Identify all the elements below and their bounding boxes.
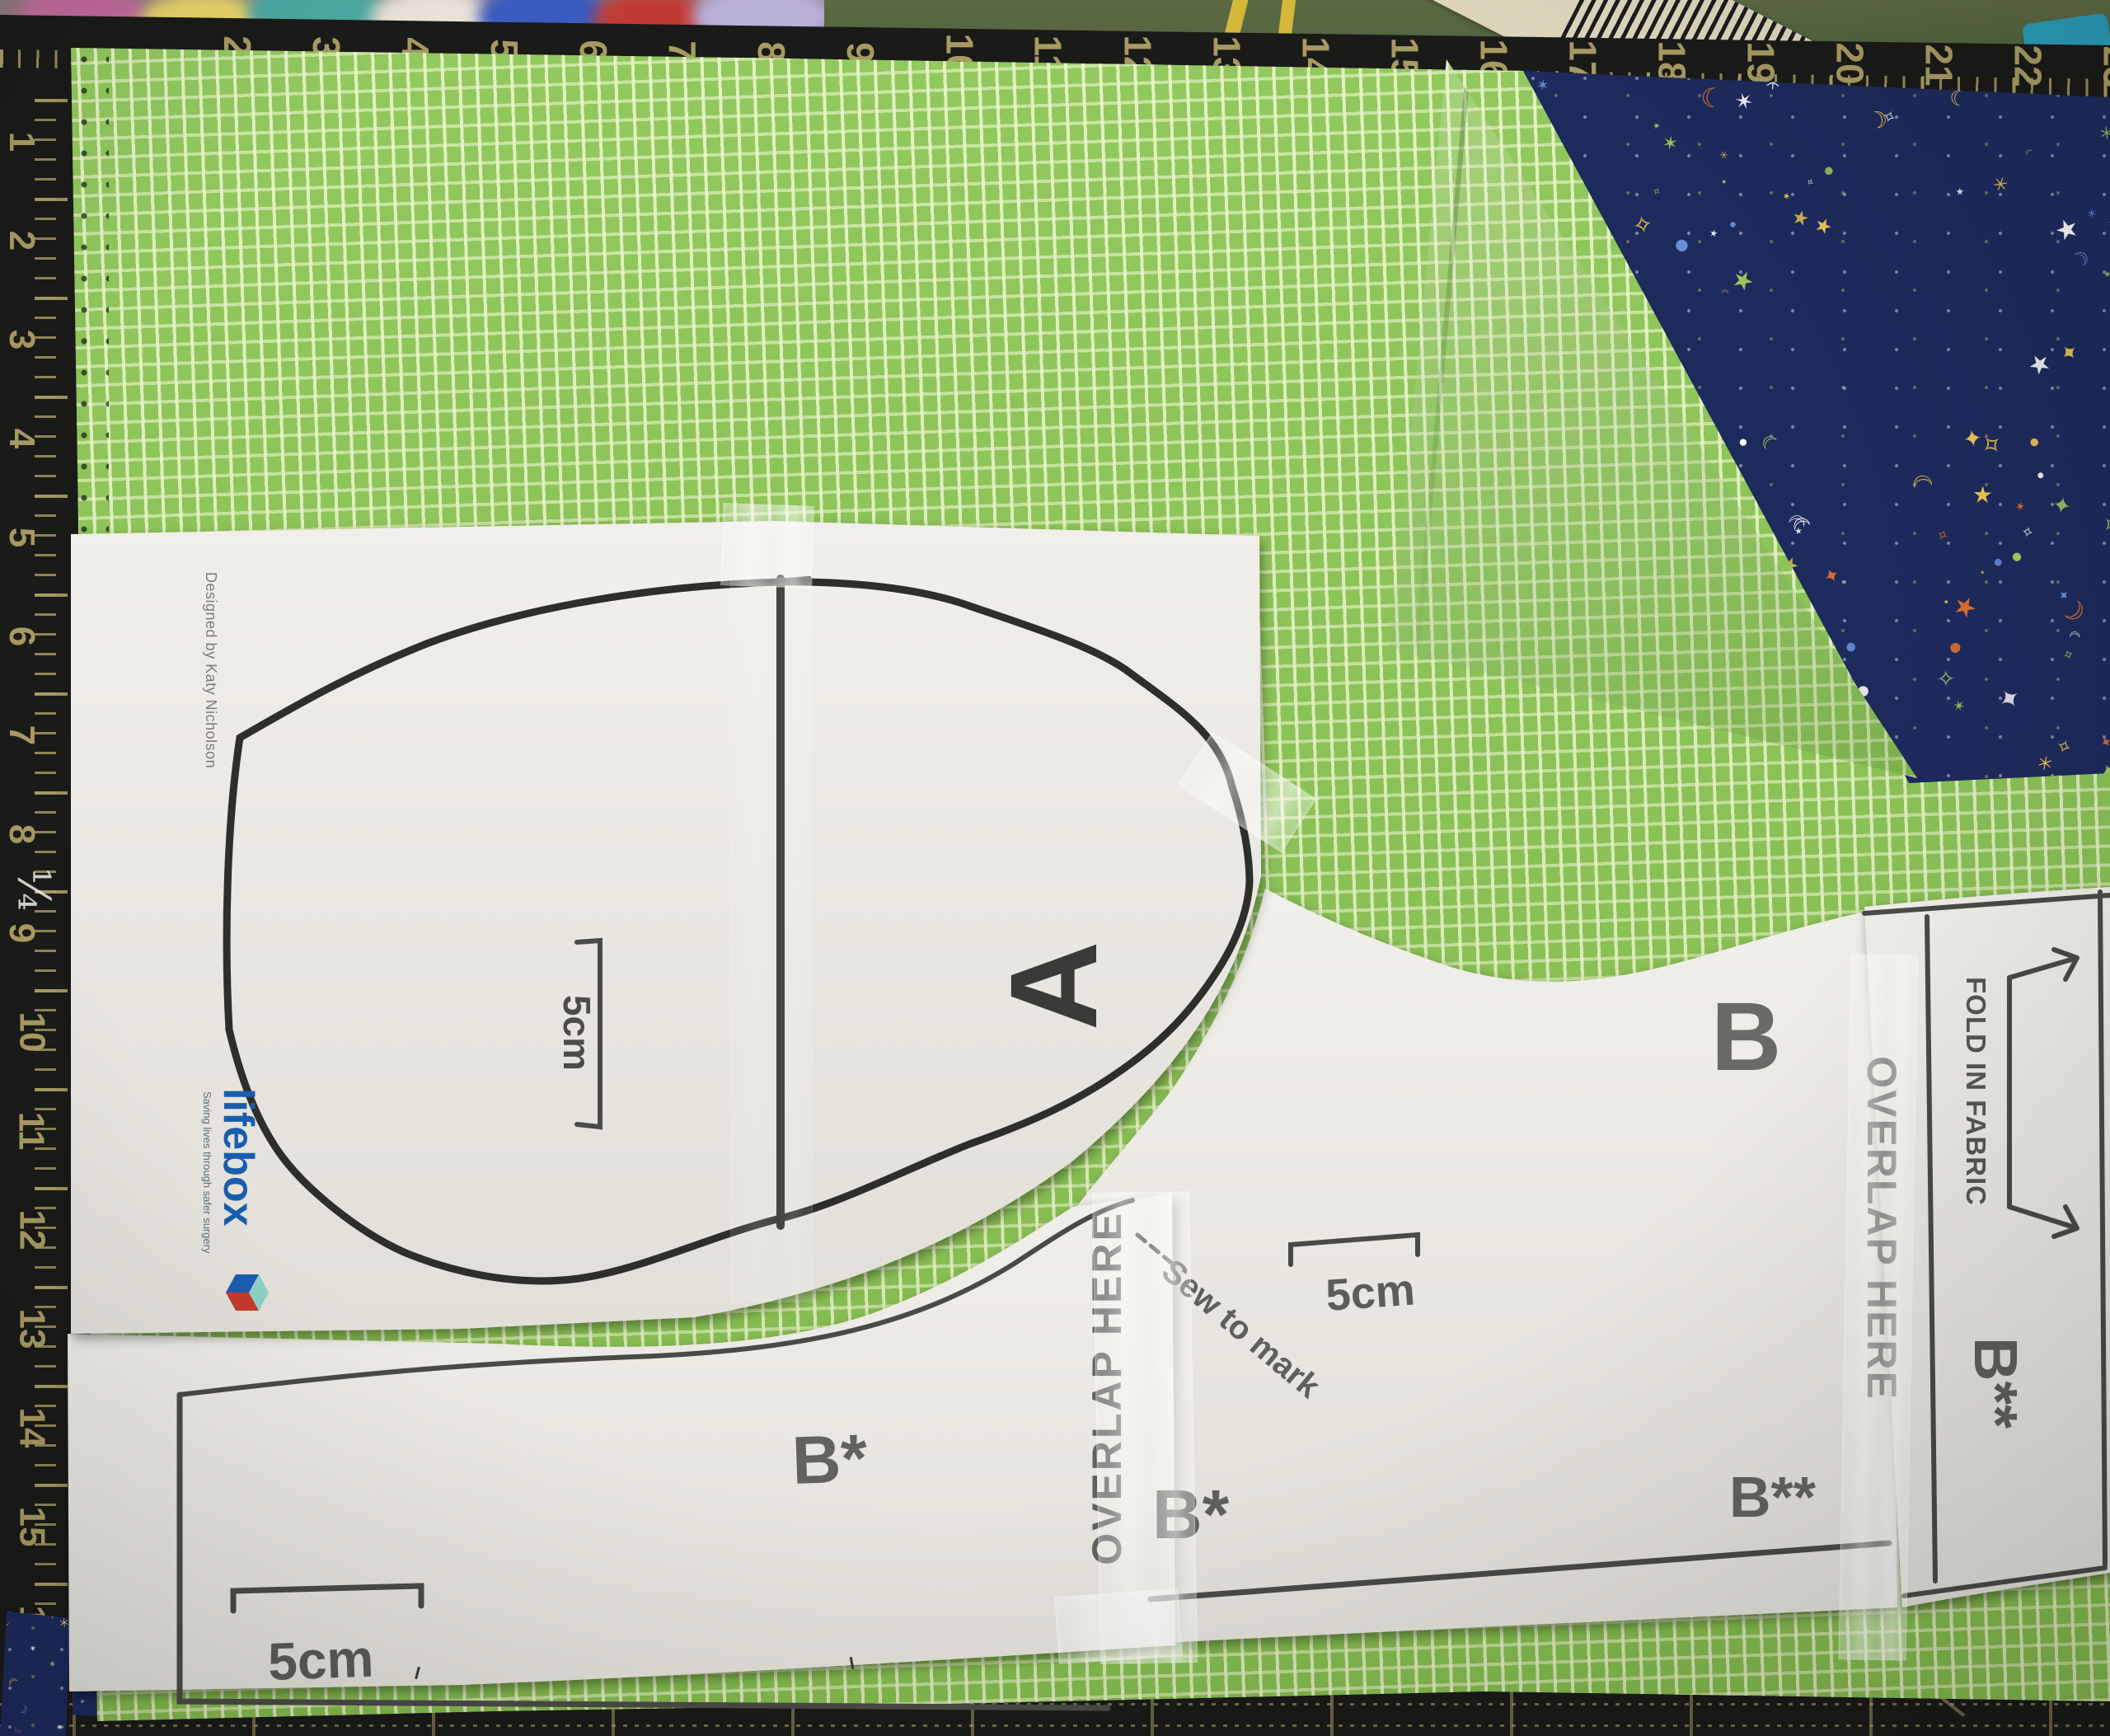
tape-strip [1839, 954, 1919, 1660]
scale-label-b: 5cm [1325, 1265, 1417, 1321]
tape-strip [1054, 1588, 1182, 1664]
tape-strip [730, 577, 813, 1302]
label-strip-b-double-star: B** [1962, 1337, 2030, 1429]
designer-credit: Designed by Katy Nicholson [203, 572, 219, 768]
lifebox-logo-text: lifebox [214, 1088, 262, 1227]
fold-in-fabric-label: FOLD IN FABRIC [1961, 977, 1991, 1206]
label-piece-b-star: B* [790, 1421, 868, 1499]
lifebox-tagline: Saving lives through safer surgery [201, 1091, 213, 1254]
sewing-pattern-photo: 234567891011121314151617181920212223 123… [0, 0, 2110, 1736]
scale-label-a: 5cm [556, 995, 598, 1071]
label-piece-b: B [1711, 983, 1781, 1091]
label-piece-a: A [984, 941, 1123, 1030]
pattern-papers: A 5cm Designed by Katy Nicholson lifebox… [0, 0, 2110, 1736]
scale-label-b-star: 5cm [267, 1629, 375, 1691]
tape-strip [720, 503, 814, 589]
label-b-double-star: B** [1729, 1465, 1817, 1529]
